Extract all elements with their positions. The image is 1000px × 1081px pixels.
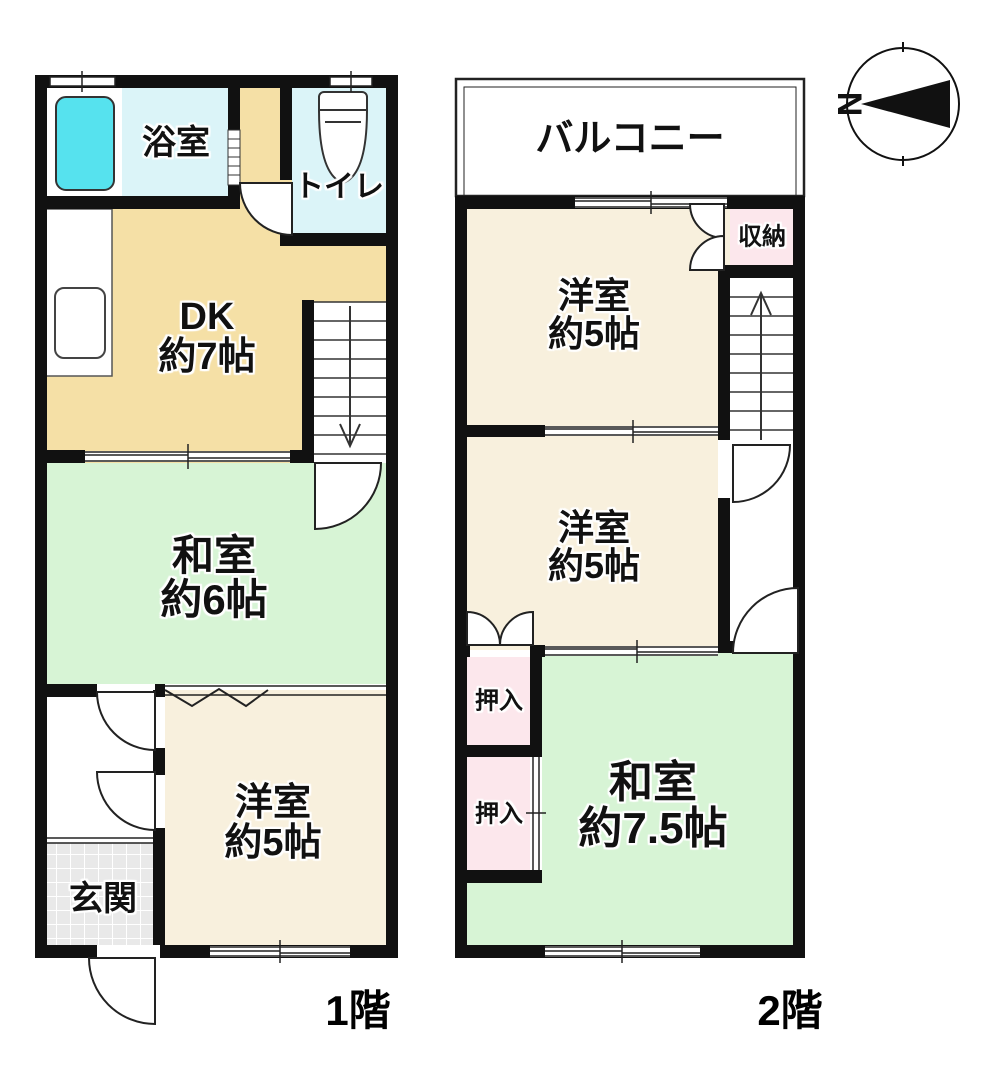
bath-room-label: 浴室 [142,126,210,162]
kitchen-sink-icon [55,288,105,358]
genkan-step-line [47,838,153,843]
hall-door-arc [97,772,155,830]
floor1-caption: 1階 [325,989,390,1033]
youshitsu1-room-label: 洋室 約5帖 [224,784,321,864]
youshitsu2m-room-label: 洋室 約5帖 [548,509,640,585]
oshiire-upper-label: 押入 [475,688,523,713]
floor2-caption: 2階 [757,989,822,1033]
genkan-label: 玄関 [69,882,137,918]
youshitsu2n-room-label: 洋室 約5帖 [548,277,640,353]
washitsu1-room-label: 和室 約6帖 [160,534,267,622]
bathtub-icon [56,97,114,190]
bath-folding-door [228,130,240,185]
staircase-up [730,278,793,445]
toilet-room-label: トイレ [294,171,384,203]
floorplan: N 浴室 トイレ DK 約7帖 和室 約6帖 洋室 約5帖 玄関 1階 バルコニ… [0,0,1000,1081]
corridor-door-arc [733,445,790,502]
compass: N [830,42,959,166]
balcony-label: バルコニー [535,120,724,160]
north-label: N [830,92,868,117]
entrance-door-arc [89,958,155,1024]
staircase-down [314,302,386,463]
washitsu2-room-label: 和室 約7.5帖 [578,760,727,852]
dk-room-label: DK 約7帖 [158,298,255,378]
oshiire-lower-label: 押入 [475,801,523,826]
hall-door-arc [97,692,155,750]
washitsu2-door-arc [733,588,798,653]
storage-label: 収納 [738,224,786,249]
